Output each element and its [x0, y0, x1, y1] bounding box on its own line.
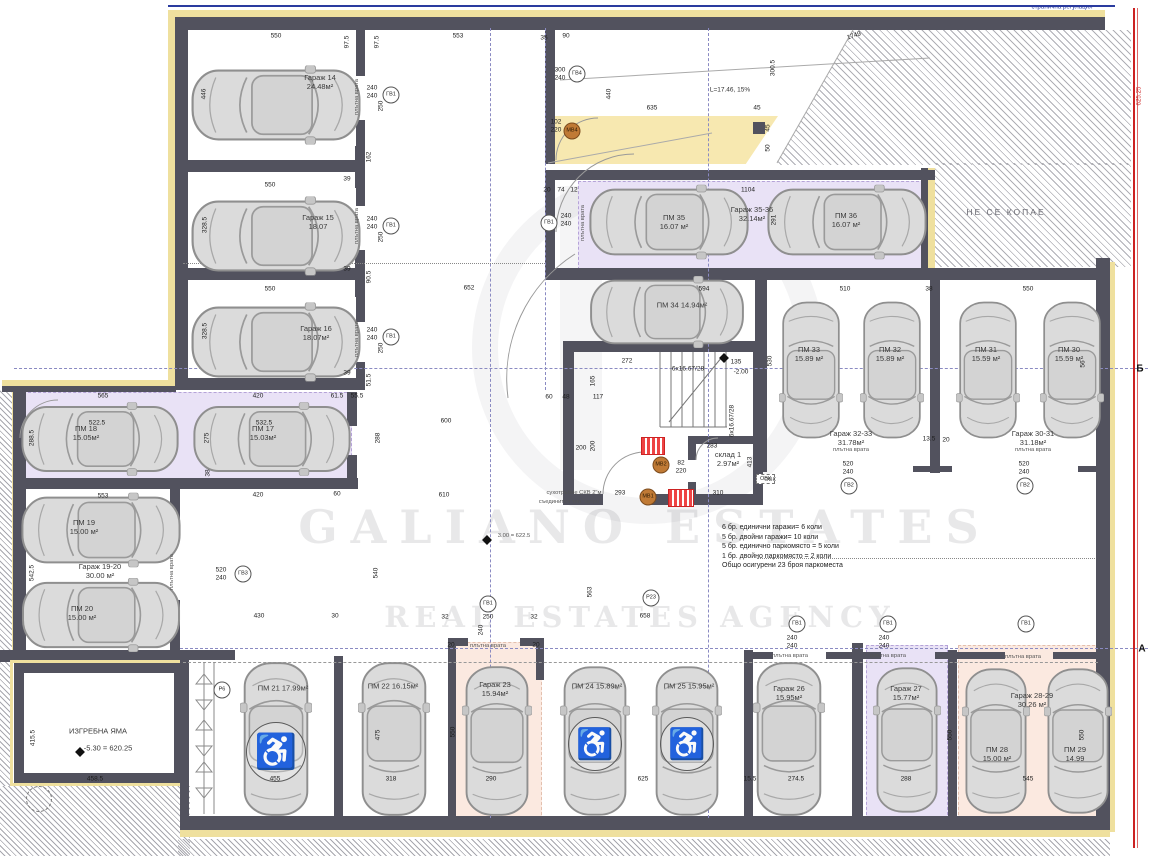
car-icon	[962, 665, 1030, 817]
car-icon	[190, 58, 362, 152]
dimension-label: 32	[441, 614, 448, 621]
marker-ГВ4: ГВ4	[569, 66, 586, 83]
handicap-icon: ♿	[660, 717, 714, 771]
marker-Р23: Р23	[643, 590, 660, 607]
space-label: склад 12.97м²	[715, 450, 741, 468]
dimension-label: 135	[731, 359, 742, 366]
dimension-label: 240	[367, 93, 378, 100]
annotation-label: А	[1138, 644, 1145, 655]
dimension-label: -2.00	[734, 369, 749, 376]
dimension-label: 90.5	[366, 271, 373, 284]
dimension-label: 550	[1079, 730, 1086, 741]
dimension-label: 553	[453, 33, 464, 40]
dimension-label: 51.5	[366, 374, 373, 387]
marker-МВ1: МВ1	[640, 489, 657, 506]
space-label: Гараж 35-3632.14м²	[731, 205, 773, 223]
annotation-label: плътна врата	[354, 321, 360, 357]
dimension-label: 440	[606, 89, 613, 100]
space-label: ПМ 3616.07 м²	[832, 211, 861, 229]
marker-МВ4: МВ4	[564, 123, 581, 140]
dimension-label: 97.5	[344, 36, 351, 49]
space-label: -5.30 = 620.25	[84, 744, 133, 753]
dimension-label: 240	[561, 221, 572, 228]
dimension-label: 420	[253, 393, 264, 400]
dimension-label: 550	[265, 182, 276, 189]
dimension-label: 200	[590, 441, 597, 452]
no-dig-hatch	[775, 30, 1131, 165]
dimension-label: 550	[1023, 286, 1034, 293]
property-line-red	[1137, 8, 1138, 848]
dimension-label: 520	[1019, 461, 1030, 468]
marker-МВ2: МВ2	[653, 457, 670, 474]
axis-line-a	[180, 648, 1148, 649]
dimension-label: 250	[378, 343, 385, 354]
space-label: ПМ 3215.89 м²	[876, 345, 905, 363]
dimension-label: 55.5	[351, 393, 364, 400]
marker-ГВ2: ГВ2	[841, 478, 858, 495]
annotation-label: сухотръбие СКВ 2"м	[547, 490, 602, 496]
dimension-label: 240	[787, 635, 798, 642]
space-label: Гараж 32-3331.78м²	[830, 429, 872, 447]
fire-hydrant-icon	[641, 437, 665, 455]
space-label: ПМ 1915.00 м²	[70, 518, 99, 536]
dimension-label: 39	[343, 266, 350, 273]
dimension-label: 291	[771, 215, 778, 226]
fire-hydrant-icon	[668, 489, 694, 507]
dimension-label: 455	[270, 776, 281, 783]
dimension-label: 61.5	[331, 393, 344, 400]
marker-ГВ1: ГВ1	[383, 87, 400, 104]
handicap-icon: ♿	[246, 722, 306, 782]
dimension-label: 542.5	[29, 565, 36, 581]
dimension-label: 563	[587, 587, 594, 598]
dimension-label: 250	[483, 614, 494, 621]
space-label: ПМ 3115.59 м²	[972, 345, 1001, 363]
car-icon	[190, 190, 362, 282]
dimension-label: 565	[98, 393, 109, 400]
dimension-label: 540	[373, 568, 380, 579]
dimension-label: 658	[640, 613, 651, 620]
summary-line: 5 бр. двойни гаражи= 10 коли	[722, 533, 843, 543]
dimension-label: 200	[576, 445, 587, 452]
dimension-label: 240	[787, 643, 798, 650]
dimension-label: 550	[271, 33, 282, 40]
summary-line: 5 бр. единично паркомясто = 5 коли	[722, 542, 843, 552]
space-label: ПМ 21 17.99м²	[258, 684, 309, 693]
dimension-label: 38	[205, 469, 212, 476]
space-label: ПМ 34 14.94м²	[657, 301, 708, 310]
dimension-label: 413	[747, 457, 754, 468]
dimension-label: 240	[879, 635, 890, 642]
dimension-label: 50	[765, 144, 772, 151]
earth-hatch	[178, 839, 1110, 856]
dimension-label: 39	[343, 370, 350, 377]
regulation-line	[168, 5, 1115, 7]
dimension-label: 594	[699, 286, 710, 293]
marker-ГВ1: ГВ1	[1018, 616, 1035, 633]
car-icon	[586, 276, 748, 348]
marker-Р6: Р6	[214, 682, 231, 699]
dimension-label: 288.5	[29, 430, 36, 446]
car-icon	[190, 296, 362, 388]
dimension-label: 240	[367, 224, 378, 231]
space-label: Гараж 2615.95м²	[773, 684, 805, 702]
annotation-label: ОВК	[764, 477, 776, 483]
dimension-label: 162	[366, 152, 373, 163]
space-label: ПМ 2015.00 м²	[68, 604, 97, 622]
floorplan-canvas: GALIANO ESTATES REAL ESTATES AGENCY	[0, 0, 1151, 856]
dimension-label: 274.5	[788, 776, 804, 783]
dimension-label: 532.5	[256, 420, 272, 427]
summary-line: 6 бр. единични гаражи= 6 коли	[722, 523, 843, 533]
dimension-label: 310	[713, 490, 724, 497]
sump-room	[10, 660, 188, 786]
dimension-label: 60	[545, 394, 552, 401]
dimension-label: 15.5	[744, 776, 757, 783]
dimension-label: 240	[367, 335, 378, 342]
dimension-label: 250	[378, 232, 385, 243]
dimension-label: 550	[265, 286, 276, 293]
dimension-label: 652	[464, 285, 475, 292]
manhole-circle	[26, 786, 52, 812]
car-icon	[1044, 665, 1112, 817]
annotation-label: плътна врата	[870, 653, 906, 659]
dimension-label: 90	[562, 33, 569, 40]
car-icon	[20, 578, 182, 652]
dimension-label: 522.5	[89, 420, 105, 427]
dimension-label: 290	[486, 776, 497, 783]
space-label: ПМ 1815.05м²	[73, 424, 99, 442]
watermark-text-1: GALIANO ESTATES	[298, 500, 991, 554]
dimension-label: 415.5	[30, 730, 37, 746]
annotation-label: плътна врата	[1005, 654, 1041, 660]
annotation-label: плътна врата	[1015, 447, 1051, 453]
space-label: Гараж 2315.94м²	[479, 680, 511, 698]
dimension-label: 102	[551, 119, 562, 126]
annotation-label: Б	[1136, 364, 1143, 375]
dimension-label: 220	[551, 127, 562, 134]
dimension-label: 240	[216, 575, 227, 582]
dimension-label: 97.5	[374, 36, 381, 49]
annotation-label: съединител тип "щорц"	[539, 499, 602, 505]
marker-ГВ1: ГВ1	[789, 616, 806, 633]
dimension-label: 240	[478, 625, 485, 636]
dimension-label: 520	[843, 461, 854, 468]
space-label: ПМ 25 15.95м²	[664, 682, 715, 691]
space-label: ПМ 3315.89 м²	[795, 345, 824, 363]
dimension-label: 240	[561, 213, 572, 220]
space-label: Гараж 1518.07	[302, 213, 334, 231]
marker-ГВ2: ГВ2	[1017, 478, 1034, 495]
summary-line: 1 бр. двойно паркомясто = 2 коли	[722, 552, 843, 562]
dimension-label: 32	[530, 614, 537, 621]
dimension-label: 275	[204, 433, 211, 444]
dimension-label: 550	[450, 727, 457, 738]
marker-ГВ1: ГВ1	[383, 218, 400, 235]
dimension-label: 475	[375, 730, 382, 741]
dimension-label: 13.5	[923, 436, 936, 443]
dimension-label: 625	[638, 776, 649, 783]
dimension-label: 82	[677, 460, 684, 467]
dimension-label: 30	[331, 613, 338, 620]
dimension-label: 20	[543, 187, 550, 194]
dimension-label: 35	[540, 35, 547, 42]
dimension-label: 240	[879, 643, 890, 650]
dimension-label: 12	[570, 187, 577, 194]
dimension-label: 293	[615, 490, 626, 497]
space-label: Гараж 1618.07м²	[300, 324, 332, 342]
ramp-area	[548, 116, 778, 164]
space-label: Гараж 2715.77м²	[890, 684, 922, 702]
annotation-label: L=17.46, 15%	[710, 87, 750, 94]
dimension-label: 545	[1023, 776, 1034, 783]
dimension-label: 1104	[741, 187, 755, 194]
space-label: Гараж 30-3131.18м²	[1012, 429, 1054, 447]
dimension-label: 6x16.67/28	[672, 366, 704, 373]
dimension-label: 272	[622, 358, 633, 365]
car-icon	[20, 400, 180, 478]
space-label: ПМ 3516.07 м²	[660, 213, 689, 231]
dimension-label: 220	[676, 468, 687, 475]
dimension-label: 288	[375, 433, 382, 444]
dimension-label: 430	[254, 613, 265, 620]
dimension-label: 240	[367, 327, 378, 334]
dimension-label: 283	[707, 443, 718, 450]
marker-ГВ3: ГВ3	[235, 566, 252, 583]
dimension-label: 38	[925, 286, 932, 293]
marker-ГВ1: ГВ1	[383, 329, 400, 346]
space-label: ИЗГРЕБНА ЯМА	[69, 727, 127, 736]
annotation-label: 625.25	[1136, 87, 1143, 106]
space-label: ПМ 2914.99	[1064, 745, 1086, 763]
space-label: Гараж 1424.48м²	[304, 73, 336, 91]
dimension-label: 600	[441, 418, 452, 425]
space-label: ПМ 24 15.89м²	[572, 682, 623, 691]
marker-ГВ1: ГВ1	[541, 215, 558, 232]
dimension-label: 510	[840, 286, 851, 293]
space-label: Гараж 19-2030.00 м²	[79, 562, 121, 580]
dimension-label: 240	[1019, 469, 1030, 476]
marker-ГВ1: ГВ1	[880, 616, 897, 633]
annotation-label: странична регулация	[1032, 4, 1093, 11]
marker-ГВ1: ГВ1	[480, 596, 497, 613]
handicap-icon: ♿	[568, 717, 622, 771]
dimension-label: 530	[767, 356, 774, 367]
dimension-label: 553	[98, 493, 109, 500]
dimension-label: 20	[942, 437, 949, 444]
dimension-label: 635	[647, 105, 658, 112]
summary-line: Общо осигурени 23 броя паркоместа	[722, 561, 843, 571]
parking-summary: 6 бр. единични гаражи= 6 коли5 бр. двойн…	[722, 523, 843, 571]
dimension-label: 610	[439, 492, 450, 499]
space-label: ПМ 2815.00 м²	[983, 745, 1012, 763]
annotation-label: 3.00 = 622.5	[498, 533, 530, 539]
dimension-label: 240	[367, 216, 378, 223]
dimension-label: 420	[253, 492, 264, 499]
dimension-label: 328.5	[202, 217, 209, 233]
annotation-label: плътна врата	[354, 79, 360, 115]
dimension-label: 240	[555, 75, 566, 82]
dimension-label: 60	[333, 491, 340, 498]
dimension-label: 165	[590, 376, 597, 387]
annotation-label: плътна врата	[580, 205, 586, 241]
annotation-label: плътна врата	[470, 643, 506, 649]
dimension-label: 56	[1080, 360, 1087, 367]
dimension-label: 20	[532, 642, 539, 649]
car-icon	[20, 492, 182, 568]
dimension-label: 288	[901, 776, 912, 783]
dimension-label: 45	[765, 124, 772, 131]
dimension-label: 250	[378, 101, 385, 112]
space-label: Гараж 28-2930.26 м²	[1011, 691, 1053, 709]
dimension-label: 520	[216, 567, 227, 574]
dimension-label: 240	[367, 85, 378, 92]
dimension-label: 45	[753, 105, 760, 112]
dimension-label: 458.5	[87, 776, 103, 783]
dimension-label: 300.5	[770, 60, 777, 76]
dimension-label: 48	[562, 394, 569, 401]
dimension-label: 318	[386, 776, 397, 783]
dimension-label: 117	[593, 394, 603, 401]
space-label: ПМ 1715.03м²	[250, 424, 276, 442]
dimension-label: 300	[555, 67, 566, 74]
dimension-label: 328.5	[202, 323, 209, 339]
dimension-label: 39	[343, 176, 350, 183]
dimension-label: 550	[947, 730, 954, 741]
dimension-label: 446	[201, 89, 208, 100]
dimension-label: 74	[557, 187, 564, 194]
annotation-label: плътна врата	[833, 447, 869, 453]
dimension-label: 20	[447, 642, 454, 649]
annotation-label: плътна врата	[354, 208, 360, 244]
annotation-label: плътна врата	[169, 554, 175, 590]
annotation-label: НЕ СЕ КОПАЕ	[966, 207, 1045, 217]
annotation-label: плътна врата	[772, 653, 808, 659]
space-label: ПМ 22 16.15м²	[368, 682, 419, 691]
dimension-label: 6x16.67/28	[729, 405, 736, 437]
property-line-red	[1133, 8, 1135, 848]
dimension-label: 240	[843, 469, 854, 476]
car-icon	[956, 282, 1020, 458]
grid-line	[545, 28, 546, 390]
